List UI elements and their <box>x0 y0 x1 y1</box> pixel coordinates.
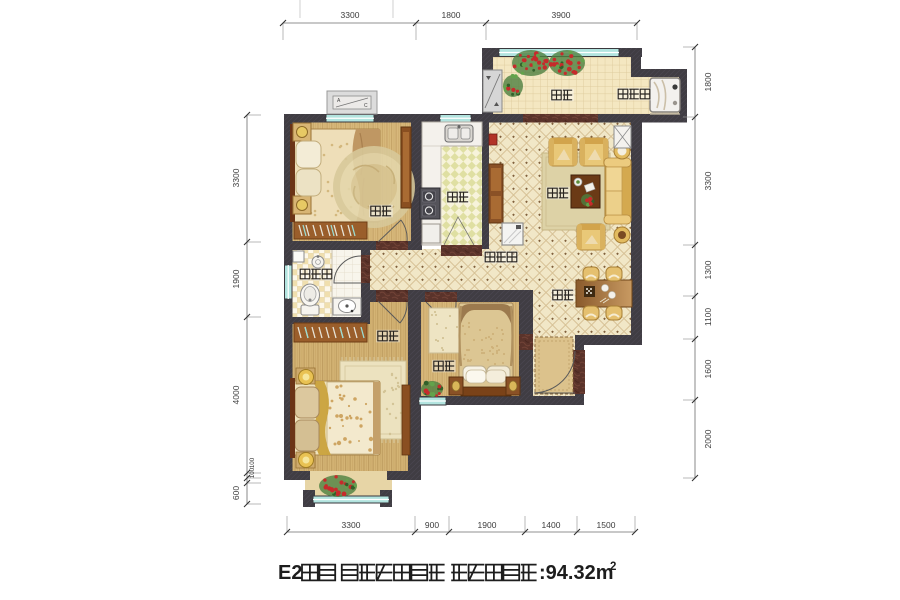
svg-text:3300: 3300 <box>231 168 241 187</box>
svg-text:1400: 1400 <box>542 520 561 530</box>
svg-text:C: C <box>364 103 368 109</box>
svg-text:1800: 1800 <box>703 72 713 91</box>
svg-text:100: 100 <box>249 467 256 478</box>
svg-text:600: 600 <box>231 486 241 500</box>
svg-text:1600: 1600 <box>703 359 713 378</box>
svg-text:100: 100 <box>249 457 256 468</box>
svg-text:1500: 1500 <box>597 520 616 530</box>
svg-text:3900: 3900 <box>552 10 571 20</box>
svg-text:2: 2 <box>610 561 616 573</box>
svg-text:1100: 1100 <box>703 308 713 327</box>
svg-text:1900: 1900 <box>231 269 241 288</box>
svg-text:4000: 4000 <box>231 385 241 404</box>
svg-text:2000: 2000 <box>703 429 713 448</box>
svg-text:3300: 3300 <box>341 10 360 20</box>
svg-text:3300: 3300 <box>703 171 713 190</box>
svg-text:1800: 1800 <box>442 10 461 20</box>
svg-text:1300: 1300 <box>703 260 713 279</box>
svg-text:1900: 1900 <box>478 520 497 530</box>
svg-text::94.32m: :94.32m <box>539 562 614 584</box>
svg-text:900: 900 <box>425 520 439 530</box>
svg-text:3300: 3300 <box>342 520 361 530</box>
svg-text:E2: E2 <box>278 562 302 584</box>
